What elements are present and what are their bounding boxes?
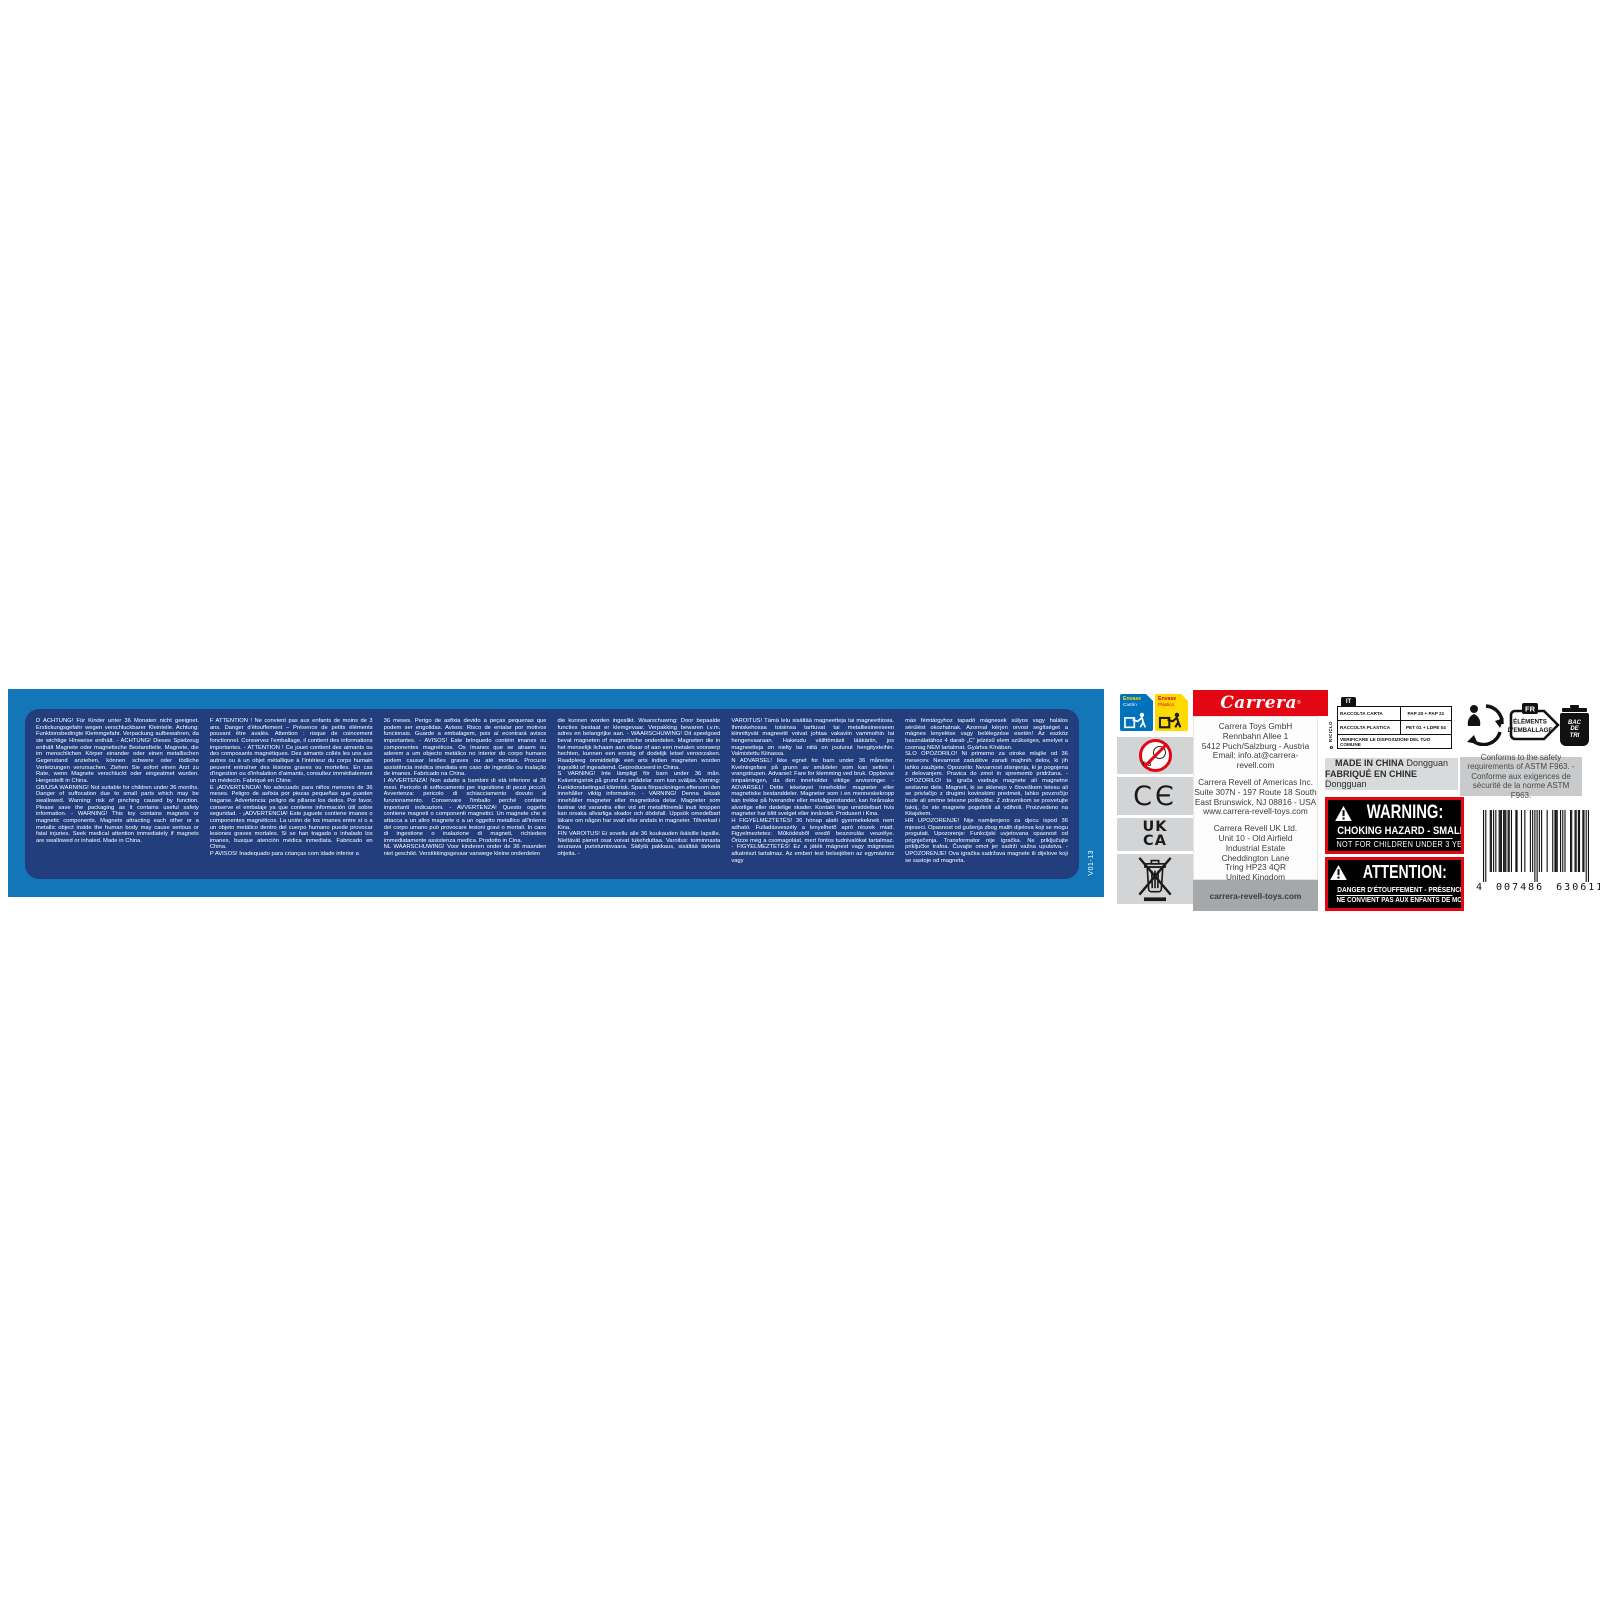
not-for-under-3-icon: 0-3 <box>1139 739 1172 772</box>
warning-column-1: D ACHTUNG! Für Kinder unter 36 Monaten n… <box>36 718 199 871</box>
warning-paragraph: GB/USA WARNING! Not suitable for childre… <box>36 785 199 845</box>
warning-paragraph: FIN VAROITUS! Ei sovellu alle 36 kuukaud… <box>557 831 720 858</box>
bac-de-tri-bin-icon: BAC DE TRI <box>1560 705 1589 746</box>
warning-column-2: F ATTENTION ! Ne convient pas aux enfant… <box>210 718 373 871</box>
warning-title-row: WARNING: <box>1328 802 1461 824</box>
riciclo-text: RICICLO <box>1328 721 1333 742</box>
choking-warning-fr-box: ATTENTION: DANGER D'ÉTOUFFEMENT - PRÉSEN… <box>1325 857 1464 911</box>
choking-warning-en-box: WARNING: CHOKING HAZARD - SMALL PARTS NO… <box>1325 797 1464 854</box>
warning-line1: CHOKING HAZARD - SMALL PARTS <box>1337 825 1451 837</box>
origin-city-en: Dongguan <box>1404 758 1448 768</box>
barcode-digit-group: 007486 <box>1495 882 1545 893</box>
age-warning-block: 0-3 <box>1117 737 1193 774</box>
warning-triangle-icon <box>1330 865 1347 880</box>
ean-barcode: 4 007486 630611 <box>1477 810 1594 895</box>
astm-conformity-note: Conforms to the safety requirements of A… <box>1460 757 1582 796</box>
folded-corner <box>1146 694 1153 701</box>
bin-body: BAC DE TRI <box>1560 713 1589 746</box>
warning-line2: NOT FOR CHILDREN UNDER 3 YEARS. <box>1336 838 1452 849</box>
address-austria: Carrera Toys GmbH Rennbahn Allee 1 5412 … <box>1194 722 1317 771</box>
address-usa: Carrera Revell of Americas Inc. Suite 30… <box>1194 778 1317 817</box>
website-url: carrera-revell-toys.com <box>1210 891 1302 901</box>
ukca-mark-icon: UK CA <box>1142 821 1167 848</box>
svg-text:ÉLÉMENTS: ÉLÉMENTS <box>1513 718 1547 726</box>
warning-paragraph: H FIGYELMEZTETÉS! 36 hónap alatti gyerme… <box>731 818 894 865</box>
bin-text-line: TRI <box>1570 733 1580 740</box>
table-row: RACCOLTA PLASTICA PET 01 + LDPE 04 <box>1338 721 1451 735</box>
origin-line-en: MADE IN CHINA Dongguan <box>1335 758 1448 769</box>
warning-paragraph: F ATTENTION ! Ne convient pas aux enfant… <box>210 718 373 785</box>
tidyman-icon <box>1158 712 1184 729</box>
origin-bold-en: MADE IN CHINA <box>1335 758 1404 768</box>
version-code: V01-13 <box>1088 850 1095 876</box>
attention-title-row: ATTENTION: <box>1328 862 1461 883</box>
ce-mark-icon: CЄ <box>1133 781 1177 812</box>
code-cell: PAP 20 + PAP 21 <box>1401 707 1451 720</box>
ukca-mark-block: UK CA <box>1117 818 1193 851</box>
warning-column-6: más fémtárgyhoz tapadó mágnesek súlyos v… <box>905 718 1068 871</box>
warning-paragraph: S VARNING! Inte lämpligt för barn under … <box>557 771 720 831</box>
table-footer-cell: VERIFICARE LE DISPOSIZIONI DEL TUO COMUN… <box>1338 735 1451 748</box>
recycle-glyph-icon: ♻ <box>1328 742 1333 749</box>
barcode-bars <box>1483 810 1589 882</box>
fr-country-tab: FR <box>1525 705 1536 714</box>
warning-column-5: VAROITUS! Tämä lelu sisältää magneetteja… <box>731 718 894 871</box>
warning-paragraph: E ¡ADVERTENCIA! No adecuado para niños m… <box>210 785 373 852</box>
svg-text:D'EMBALLAGE: D'EMBALLAGE <box>1508 727 1553 734</box>
folded-corner <box>1181 694 1188 701</box>
table-row: VERIFICARE LE DISPOSIZIONI DEL TUO COMUN… <box>1338 735 1451 748</box>
ukca-line2: CA <box>1142 835 1167 849</box>
astm-text: Conforms to the safety requirements of A… <box>1463 753 1579 801</box>
fr-packaging-elements-mark: FR ÉLÉMENTS D'EMBALLAGE <box>1508 702 1562 751</box>
warning-paragraph: P AVISOS! Inadequado para crianças com i… <box>210 851 373 858</box>
origin-city-fr: Dongguan <box>1325 779 1367 789</box>
spanish-recycling-icons: Envase Cartón Envase Plástico <box>1120 694 1188 731</box>
warning-paragraph: SLO OPOZORILO! Ni primerno za otroke mla… <box>905 751 1068 818</box>
packaging-label-sheet: D ACHTUNG! Für Kinder unter 36 Monaten n… <box>0 0 1600 1600</box>
warning-paragraph: I AVVERTENZA! Non adatto a bambini di et… <box>384 778 547 845</box>
code-cell: PET 01 + LDPE 04 <box>1401 721 1451 734</box>
warning-paragraph: N ADVARSEL! Ikke egnet for barn under 36… <box>731 758 894 818</box>
table-row: RACCOLTA CARTA PAP 20 + PAP 21 <box>1338 707 1451 721</box>
weee-block <box>1117 854 1193 904</box>
barcode-digits: 4 007486 630611 <box>1477 882 1594 893</box>
blue-label-strip: D ACHTUNG! Für Kinder unter 36 Monaten n… <box>8 689 1104 897</box>
origin-bold-fr: FABRIQUÉ EN CHINE <box>1325 769 1417 779</box>
crossed-out-bin-icon <box>1136 856 1174 902</box>
ce-mark-block: CЄ <box>1117 777 1193 815</box>
carrera-logo-text: Carrera <box>1220 693 1297 713</box>
website-bar: carrera-revell-toys.com <box>1193 880 1318 911</box>
envase-plastico-label2: Plástico <box>1158 702 1188 707</box>
manufacturer-addresses: Carrera Toys GmbH Rennbahn Allee 1 5412 … <box>1193 716 1318 880</box>
warning-paragraph: más fémtárgyhoz tapadó mágnesek súlyos v… <box>905 718 1068 751</box>
material-cell: RACCOLTA CARTA <box>1338 707 1401 720</box>
carrera-logo: Carrera® <box>1193 690 1328 716</box>
barcode-digit-group: 4 <box>1475 882 1483 893</box>
tidyman-icon <box>1123 712 1149 729</box>
attention-line2: NE CONVIENT PAS AUX ENFANTS DE MOINS DE … <box>1336 895 1452 904</box>
address-line: Email: info.at@carrera-revell.com <box>1194 751 1317 771</box>
origin-line-fr: FABRIQUÉ EN CHINE Dongguan <box>1325 769 1458 790</box>
attention-title: ATTENTION: <box>1363 862 1447 883</box>
warning-paragraph: NL WAARSCHUWING! Voor kinderen onder de … <box>384 844 547 857</box>
warning-title: WARNING: <box>1367 802 1444 824</box>
warning-triangle-icon <box>1335 806 1352 821</box>
warning-paragraph: 36 meses. Perigo de asfixia devido a peç… <box>384 718 547 778</box>
warning-paragraph: D ACHTUNG! Für Kinder unter 36 Monaten n… <box>36 718 199 785</box>
envase-carton-label2: Cartón <box>1123 702 1153 707</box>
it-recycling-table: RACCOLTA CARTA PAP 20 + PAP 21 RACCOLTA … <box>1337 706 1452 749</box>
registered-mark: ® <box>1297 700 1301 706</box>
bin-lid <box>1562 708 1587 712</box>
material-cell: RACCOLTA PLASTICA <box>1338 721 1401 734</box>
envase-carton-icon: Envase Cartón <box>1120 694 1153 731</box>
attention-line1: DANGER D'ÉTOUFFEMENT - PRÉSENCE DE PETIT… <box>1337 885 1451 894</box>
envase-plastico-icon: Envase Plástico <box>1155 694 1188 731</box>
warning-paragraph: VAROITUS! Tämä lelu sisältää magneetteja… <box>731 718 894 758</box>
barcode-digit-group: 630611 <box>1555 882 1600 893</box>
warning-text-panel: D ACHTUNG! Für Kinder unter 36 Monaten n… <box>25 709 1079 879</box>
riciclo-vertical-label: ♻ RICICLO <box>1328 706 1333 749</box>
country-of-origin-block: MADE IN CHINA Dongguan FABRIQUÉ EN CHINE… <box>1325 758 1458 790</box>
warning-column-4: die kunnen worden ingeslikt. Waarschuwin… <box>557 718 720 871</box>
address-line: www.carrera-revell-toys.com <box>1194 807 1317 817</box>
triman-icon <box>1462 700 1506 751</box>
warning-column-3: 36 meses. Perigo de asfixia devido a peç… <box>384 718 547 871</box>
address-uk: Carrera Revell UK Ltd. Unit 10 - Old Air… <box>1194 824 1317 883</box>
warning-paragraph: die kunnen worden ingeslikt. Waarschuwin… <box>557 718 720 771</box>
warning-paragraph: HR UPOZORENJE! Nije namijenjeno za djecu… <box>905 818 1068 865</box>
